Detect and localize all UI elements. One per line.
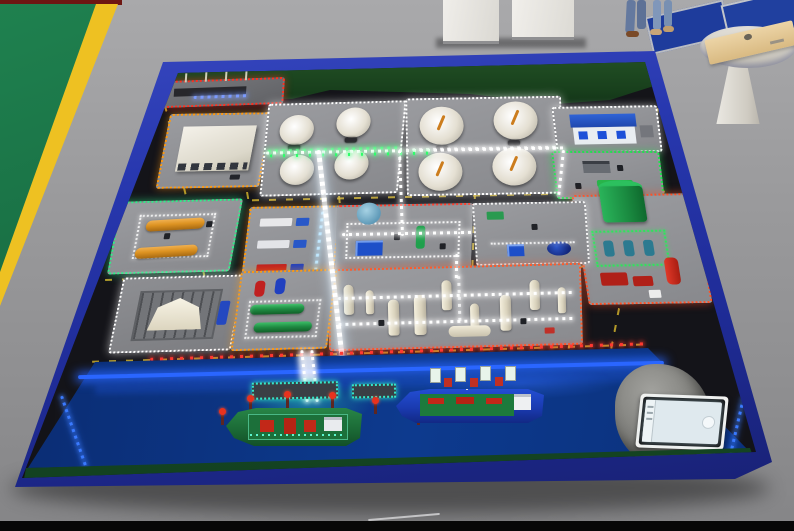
column bbox=[414, 295, 427, 335]
workshop-photo bbox=[0, 0, 794, 531]
mooring-bollard bbox=[284, 391, 291, 398]
gantry-led bbox=[194, 94, 248, 99]
mooring-bollard bbox=[329, 392, 336, 399]
loading-arm bbox=[470, 378, 478, 387]
storage-tank-large bbox=[419, 106, 464, 145]
tablet-sidebar-line bbox=[647, 412, 653, 414]
green-vessel bbox=[416, 226, 426, 249]
red-tank bbox=[663, 257, 681, 284]
skid-piping-led bbox=[244, 299, 321, 339]
deck-manifold-red bbox=[456, 397, 474, 404]
tablet-dial bbox=[701, 416, 715, 429]
person-shoe bbox=[626, 31, 639, 37]
parked-vehicle bbox=[229, 174, 240, 179]
display-board bbox=[443, 0, 499, 44]
green-tank bbox=[598, 186, 648, 223]
small-pump bbox=[206, 221, 213, 227]
pump-row bbox=[257, 240, 290, 249]
deck-equipment-red bbox=[284, 418, 296, 434]
loading-arm bbox=[495, 377, 503, 386]
person-leg bbox=[625, 0, 636, 33]
display-board bbox=[512, 0, 574, 40]
mooring-bollard bbox=[247, 395, 254, 402]
admin-window bbox=[616, 131, 626, 139]
small-pump bbox=[163, 233, 170, 239]
admin-annex bbox=[640, 125, 654, 137]
mooring-bollard bbox=[219, 408, 226, 415]
storage-tank bbox=[278, 154, 315, 185]
zone-horizontal-vessels bbox=[107, 198, 243, 274]
zone-green-vessel-skid bbox=[231, 269, 338, 351]
storage-tank bbox=[335, 107, 372, 138]
zone-warehouse bbox=[156, 112, 274, 189]
mooring-bollard bbox=[372, 397, 379, 404]
small-pump bbox=[520, 318, 526, 324]
storage-tank-large bbox=[493, 101, 538, 140]
mooring-post bbox=[374, 403, 377, 414]
admin-window bbox=[597, 131, 607, 139]
red-pump bbox=[545, 327, 555, 333]
small-pump bbox=[440, 243, 446, 249]
pump-row bbox=[259, 218, 292, 227]
loading-gantry bbox=[455, 367, 466, 382]
zone-process-unit-a bbox=[335, 203, 473, 271]
person-shoe bbox=[650, 29, 662, 35]
column bbox=[500, 295, 512, 331]
ship-deckhouse bbox=[514, 394, 531, 410]
column-piping-led bbox=[457, 276, 461, 324]
zone-admin-building bbox=[551, 105, 663, 154]
mooring-post bbox=[331, 398, 334, 409]
tank-manifold bbox=[508, 140, 520, 145]
pipeline-led-vertical bbox=[455, 254, 458, 280]
red-skid bbox=[600, 272, 629, 285]
horizontal-vessel bbox=[448, 325, 490, 337]
person-leg bbox=[664, 0, 672, 27]
person-leg bbox=[653, 0, 661, 30]
tanker-blue bbox=[396, 386, 546, 426]
admin-roof bbox=[569, 113, 636, 127]
loading-gantry bbox=[505, 366, 516, 381]
column bbox=[366, 290, 375, 314]
red-vessel bbox=[254, 281, 266, 297]
pedestal-table-base bbox=[714, 58, 762, 124]
gantry-mast bbox=[225, 71, 228, 81]
tablet-sidebar-line bbox=[647, 406, 653, 408]
person-leg bbox=[637, 0, 646, 29]
admin-window bbox=[578, 131, 588, 139]
white-box bbox=[648, 290, 661, 298]
small-pump bbox=[617, 165, 624, 171]
small-pump bbox=[531, 224, 537, 230]
zone-process-unit-b bbox=[472, 201, 590, 266]
mooring-post bbox=[286, 397, 289, 408]
control-cabinet bbox=[355, 240, 383, 255]
deck-walkway-led bbox=[250, 434, 346, 436]
tablet-button-grid bbox=[660, 404, 701, 405]
pump-row bbox=[293, 240, 307, 248]
column bbox=[388, 299, 400, 335]
floor-cable bbox=[368, 513, 440, 521]
tablet-sidebar-line bbox=[646, 418, 652, 420]
green-skid bbox=[486, 211, 504, 219]
storage-tank-large bbox=[492, 147, 537, 186]
gantry-mast bbox=[245, 71, 248, 80]
ship-deckhouse bbox=[324, 417, 342, 431]
pump-row bbox=[296, 218, 310, 226]
control-tablet bbox=[635, 394, 729, 451]
red-skid bbox=[632, 276, 654, 286]
small-pump bbox=[378, 320, 384, 326]
person-shoe bbox=[663, 26, 674, 32]
zone-covered-pit bbox=[108, 274, 246, 353]
loading-arm bbox=[444, 378, 452, 387]
jetty-platform bbox=[252, 381, 338, 399]
loading-gantry bbox=[480, 366, 491, 381]
deck-equipment-red bbox=[304, 420, 316, 432]
zone-tank-farm-small bbox=[259, 100, 406, 197]
deck-manifold-red bbox=[486, 398, 502, 404]
gantry-mast bbox=[205, 72, 208, 82]
zone-truck-loading-gantry bbox=[163, 77, 285, 108]
tank-manifold bbox=[345, 137, 358, 142]
deck-equipment-red bbox=[260, 420, 274, 432]
storage-tank-large bbox=[418, 152, 463, 191]
small-pump bbox=[575, 183, 582, 189]
deck-manifold-red bbox=[428, 398, 444, 404]
control-cabinet bbox=[507, 244, 525, 256]
blue-vessel bbox=[274, 278, 286, 294]
mooring-post bbox=[221, 414, 224, 425]
bottom-dark-strip bbox=[0, 521, 794, 531]
gantry-mast bbox=[185, 73, 188, 82]
table-surface bbox=[0, 0, 794, 531]
generator-unit bbox=[582, 161, 610, 173]
storage-tank bbox=[278, 115, 315, 146]
warehouse-doors bbox=[177, 162, 248, 170]
loading-gantry bbox=[430, 368, 441, 383]
tablet-screen bbox=[642, 400, 722, 445]
